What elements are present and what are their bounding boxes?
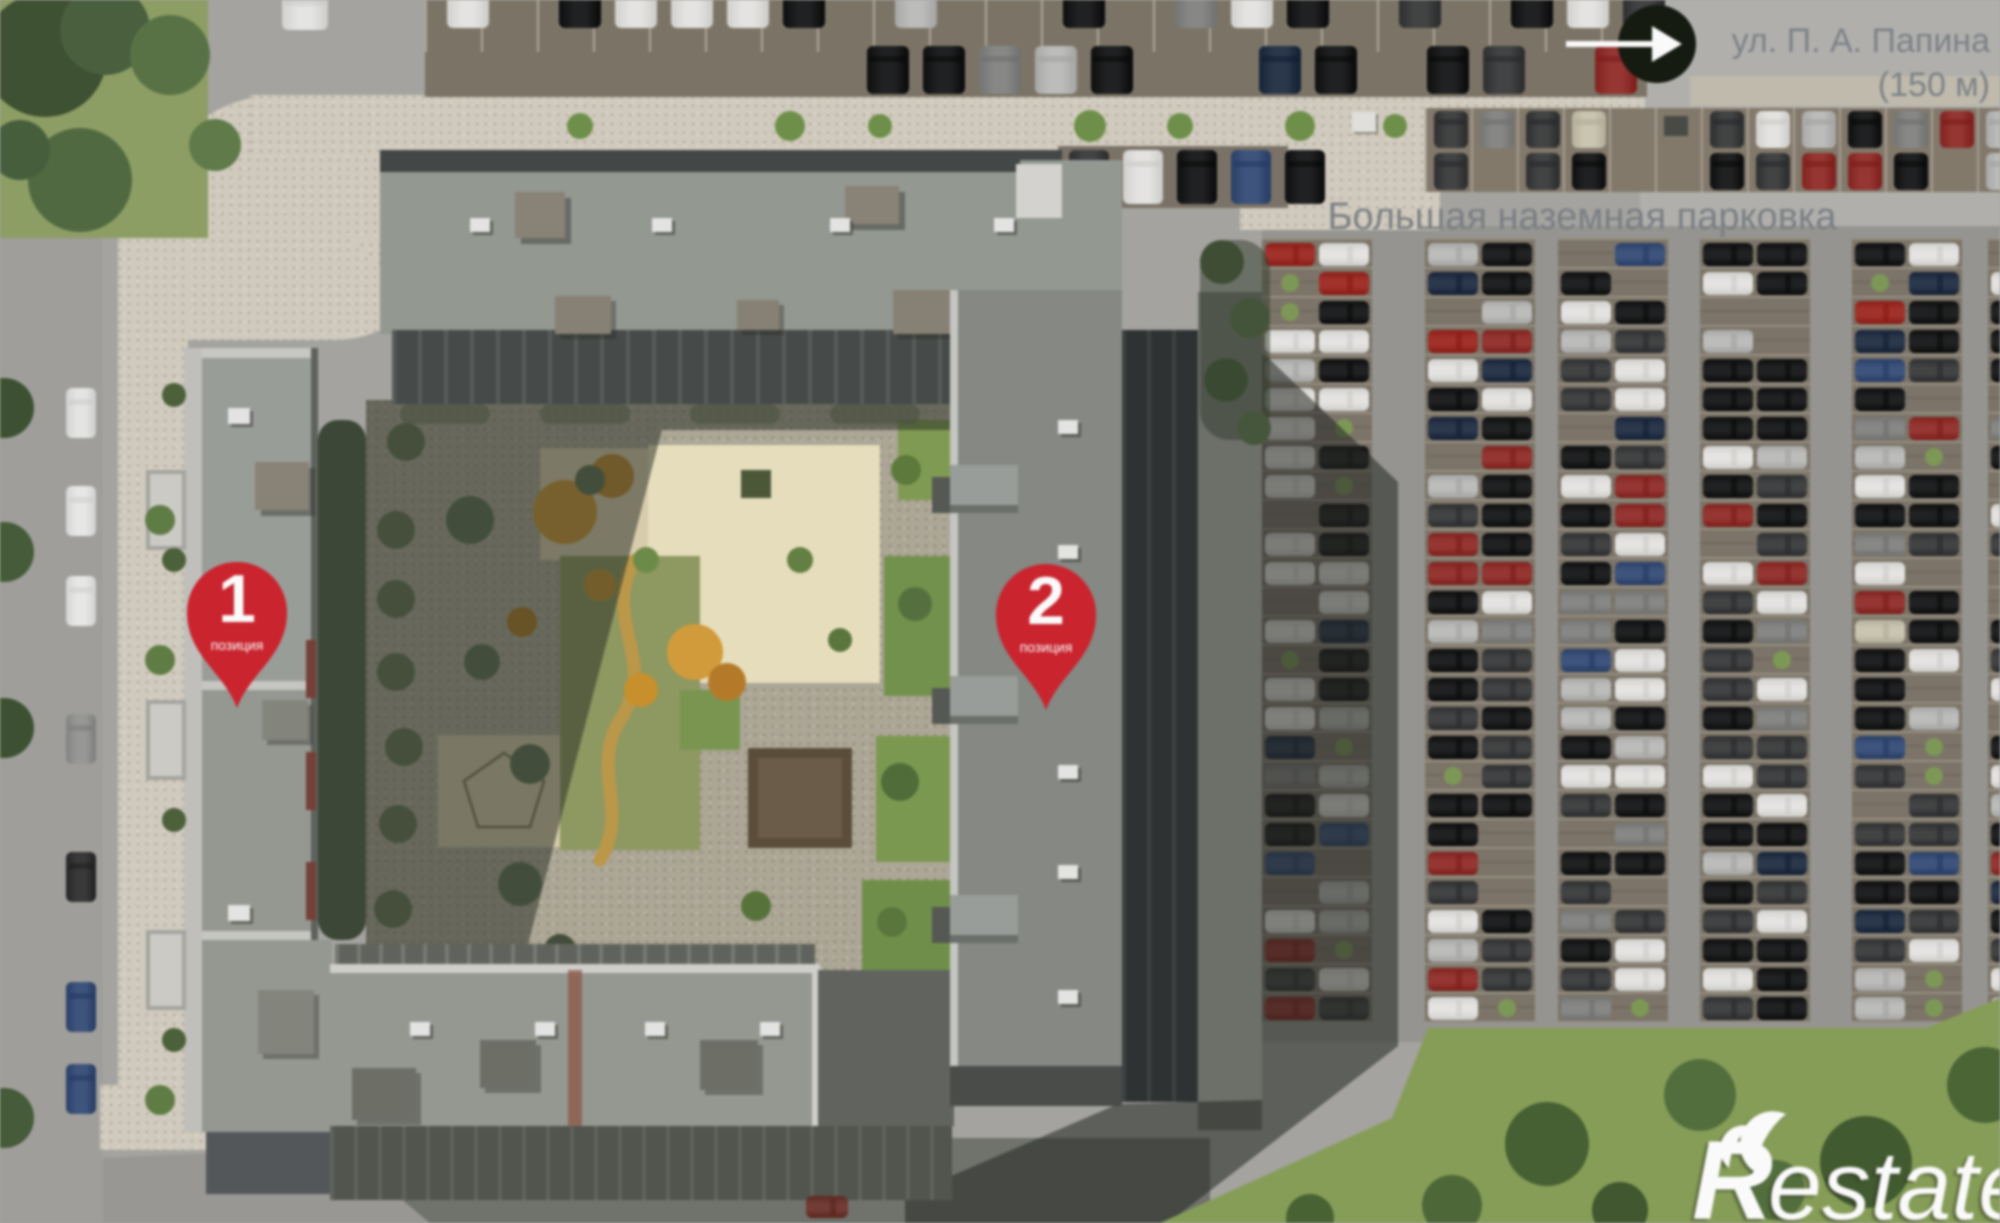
svg-text:Большая наземная парковка: Большая наземная парковка — [1328, 196, 1838, 238]
svg-text:ул. П. А. Папина: ул. П. А. Папина — [1732, 22, 1990, 60]
svg-text:позиция: позиция — [1020, 639, 1073, 655]
svg-text:(150 м): (150 м) — [1878, 66, 1990, 104]
svg-text:позиция: позиция — [211, 637, 264, 653]
svg-text:1: 1 — [218, 561, 256, 637]
svg-text:2: 2 — [1027, 563, 1065, 639]
svg-text:estate: estate — [1768, 1131, 2000, 1223]
